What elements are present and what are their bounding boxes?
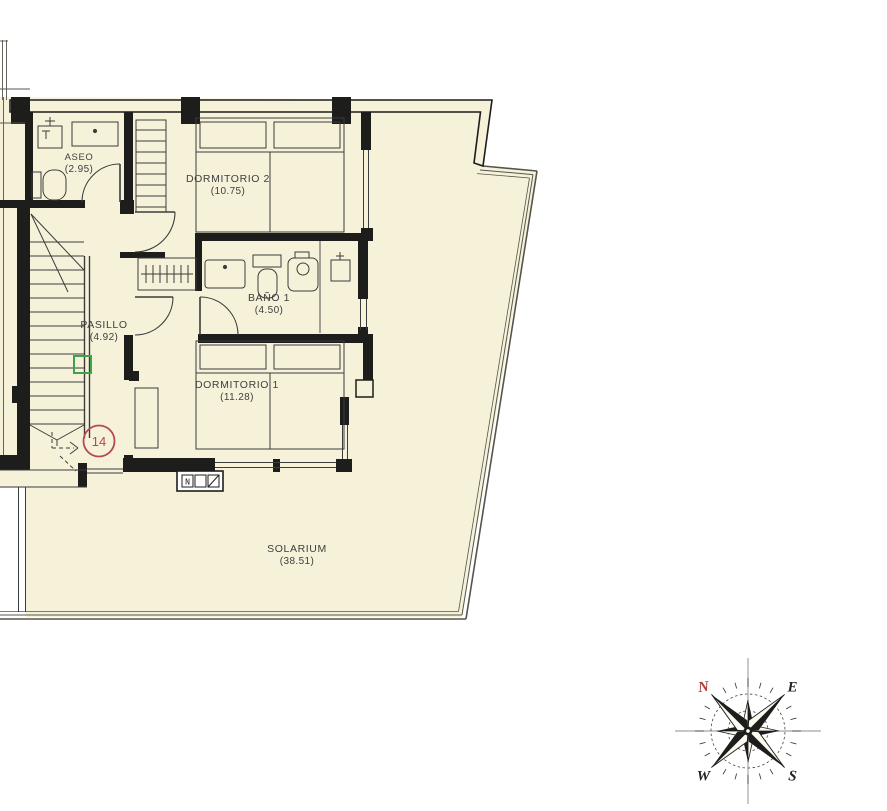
room-label-pasillo: PASILLO xyxy=(80,319,127,331)
compass-north-label: N xyxy=(696,679,711,696)
meter-box-label: N xyxy=(185,478,190,487)
room-label-dormitorio-1: DORMITORIO 1 xyxy=(195,379,279,391)
unit-number-text: 14 xyxy=(92,434,106,449)
pilaster xyxy=(356,380,373,397)
room-label-dormitorio-2: DORMITORIO 2 xyxy=(186,173,270,185)
compass-west-label: W xyxy=(697,769,712,785)
room-label-bano-1: BAÑO 1 xyxy=(248,291,290,304)
pillar xyxy=(332,97,351,124)
floor-plan-page: N 14 ASEO (2.95) DORMITORIO 2 (10.75) BA… xyxy=(0,0,887,811)
room-label-solarium: SOLARIUM xyxy=(267,543,327,555)
room-area-dormitorio-1: (11.28) xyxy=(220,392,254,403)
room-area-bano-1: (4.50) xyxy=(255,305,284,316)
floor-plan-drawing: N 14 ASEO (2.95) DORMITORIO 2 (10.75) BA… xyxy=(0,0,887,811)
pillar xyxy=(181,97,200,124)
compass-rose: N E S W xyxy=(602,585,887,811)
room-area-aseo: (2.95) xyxy=(65,164,94,175)
room-area-solarium: (38.51) xyxy=(280,556,315,567)
room-area-dormitorio-2: (10.75) xyxy=(211,186,246,197)
compass-south-label: S xyxy=(788,768,798,785)
compass-east-label: E xyxy=(787,679,798,695)
meter-box: N xyxy=(177,471,223,491)
room-label-aseo: ASEO xyxy=(65,152,94,163)
room-area-pasillo: (4.92) xyxy=(90,332,119,343)
